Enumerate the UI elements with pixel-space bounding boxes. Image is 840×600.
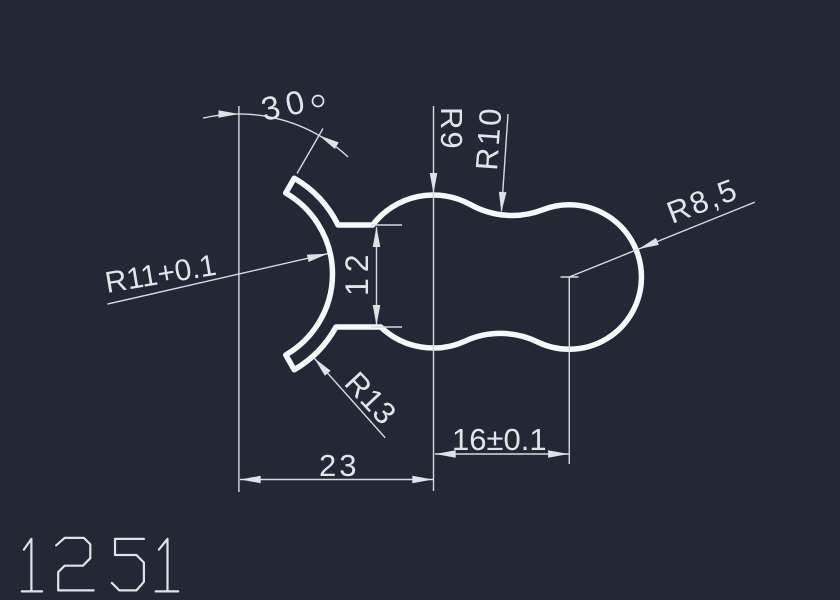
svg-text:12: 12 — [339, 248, 375, 296]
svg-text:R10: R10 — [469, 105, 508, 172]
svg-text:R9: R9 — [434, 107, 469, 151]
svg-text:16±0.1: 16±0.1 — [452, 422, 547, 457]
svg-text:23: 23 — [319, 448, 359, 483]
